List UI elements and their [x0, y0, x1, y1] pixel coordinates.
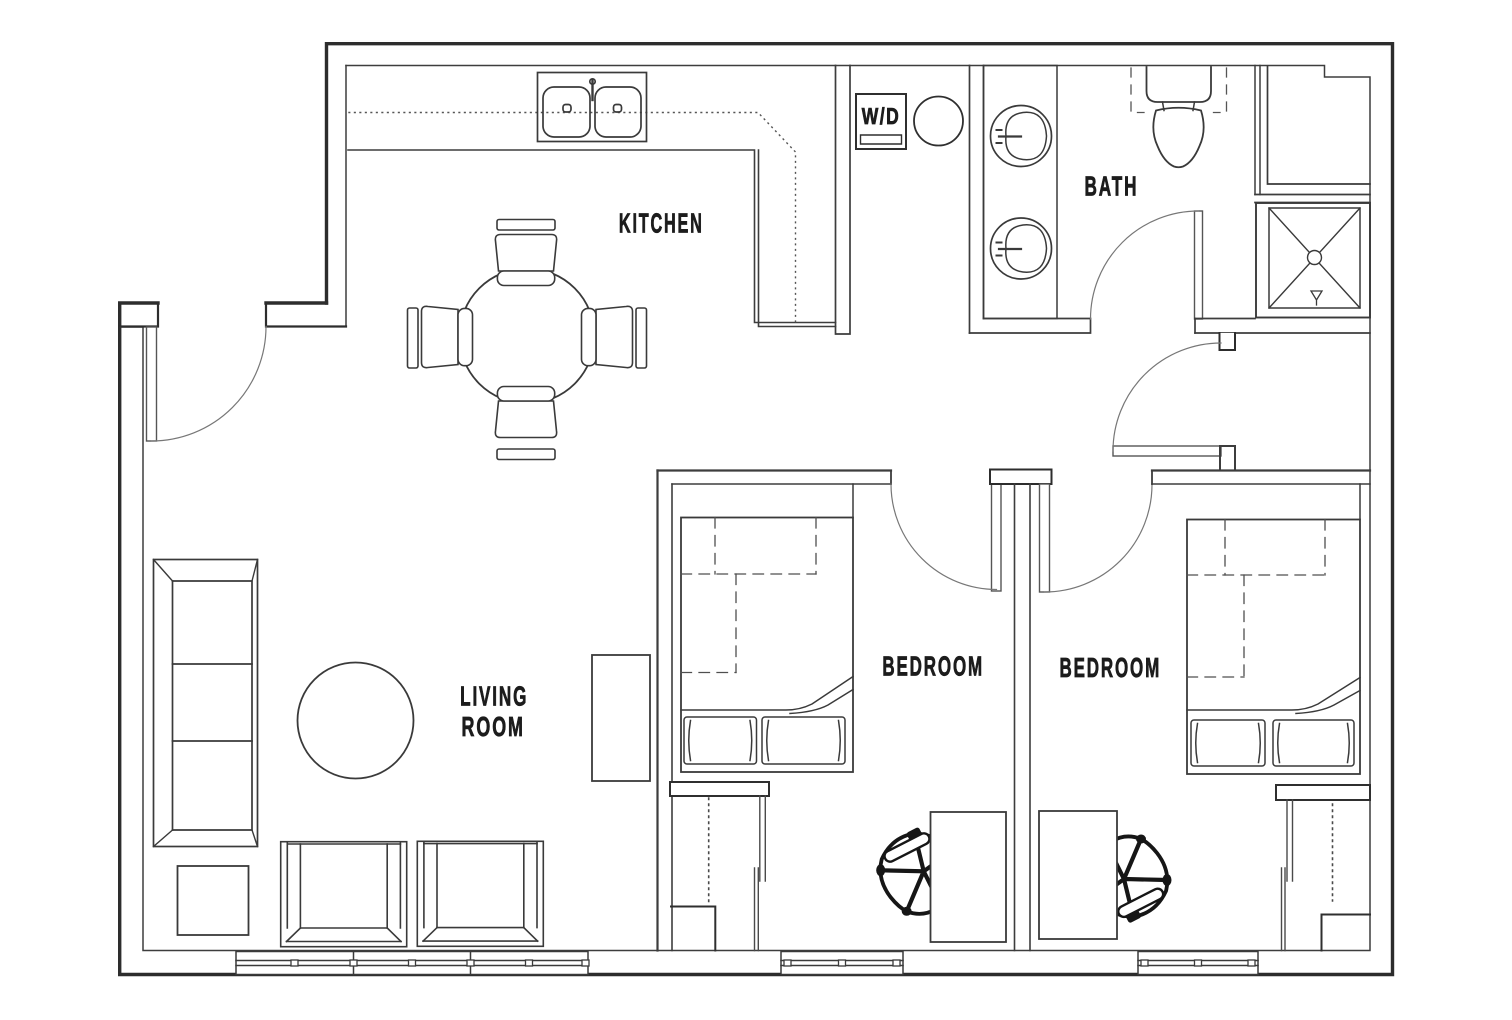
svg-text:BATH: BATH — [1084, 170, 1138, 201]
svg-text:W/D: W/D — [862, 103, 901, 129]
svg-text:ROOM: ROOM — [461, 711, 524, 742]
svg-text:LIVING: LIVING — [460, 681, 528, 712]
svg-text:BEDROOM: BEDROOM — [1060, 652, 1162, 683]
svg-text:KITCHEN: KITCHEN — [619, 208, 704, 239]
svg-text:BEDROOM: BEDROOM — [882, 651, 984, 682]
